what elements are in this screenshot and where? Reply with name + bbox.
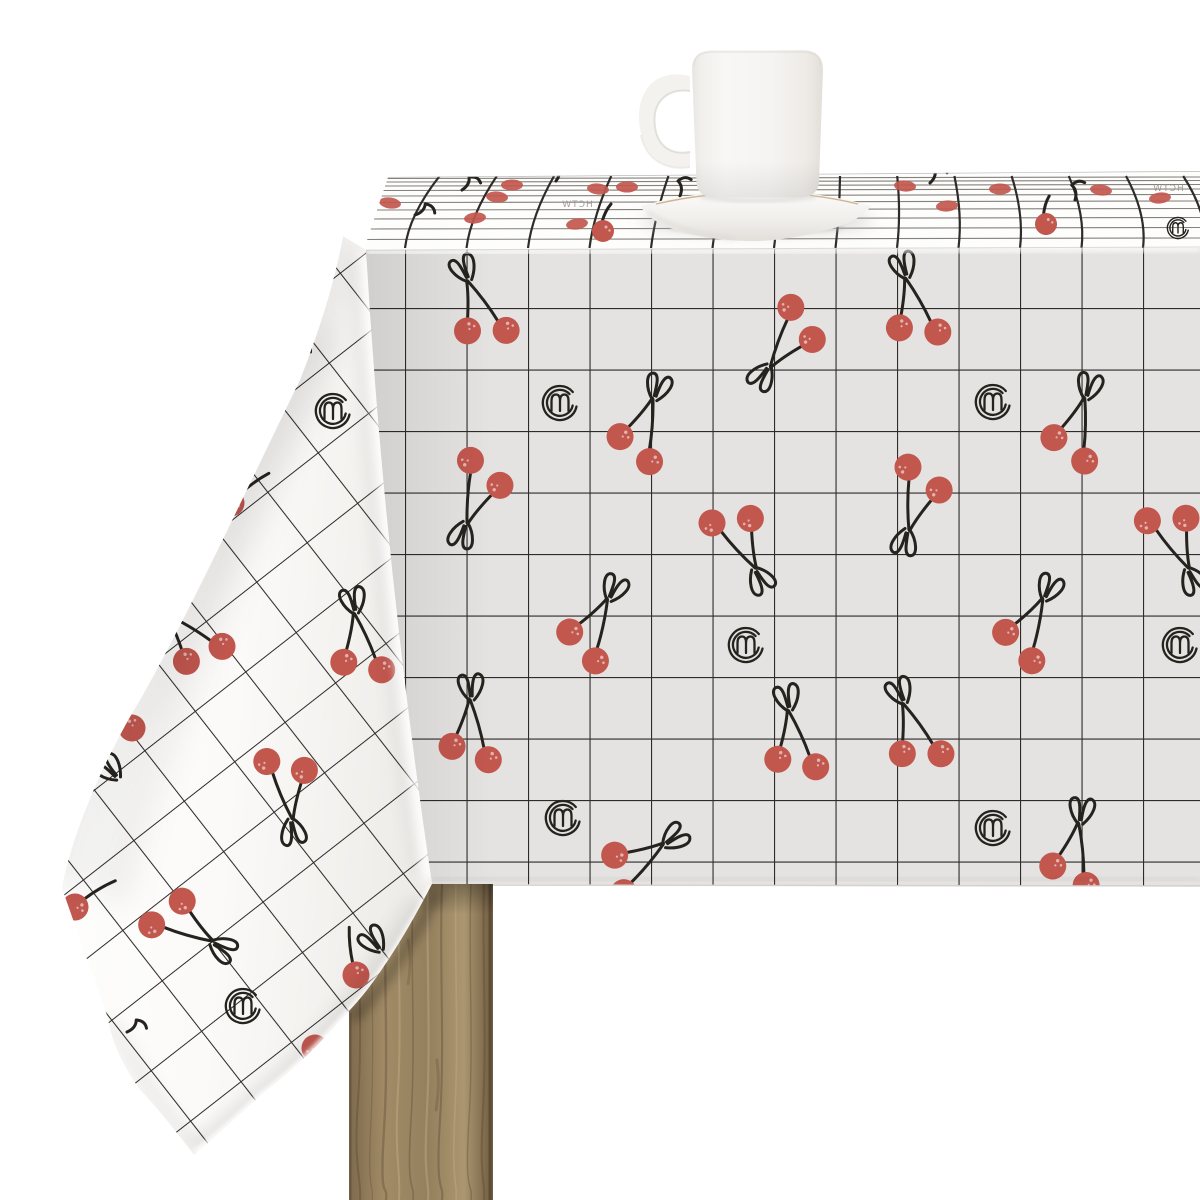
scene-canvas: HCTWHCTW [0, 0, 1200, 1200]
front-hem-edge [432, 885, 1200, 886]
mug-base-shading [692, 50, 823, 198]
front-hem-shading [430, 878, 1200, 880]
cherry-blob-motif [989, 184, 1011, 195]
cherry-blob-motif [616, 182, 638, 193]
cherry-blob-motif [501, 180, 523, 191]
tablecloth-front-panel [350, 240, 1200, 911]
brand-micro-text: HCTW [561, 200, 592, 210]
product-photo: HCTWHCTW [0, 0, 1200, 1200]
brand-micro-text: HCTW [1152, 184, 1183, 194]
